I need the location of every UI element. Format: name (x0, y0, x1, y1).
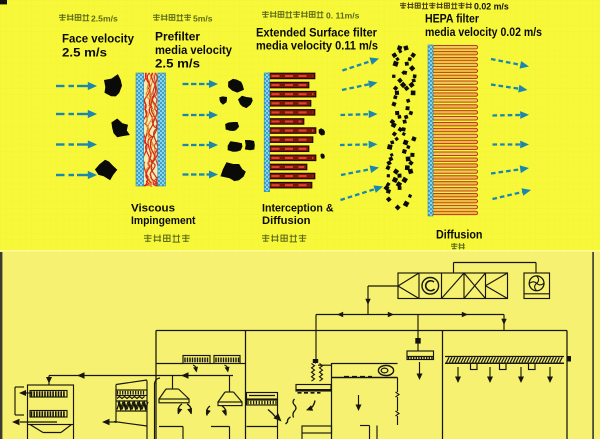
svg-text:Face velocity: Face velocity (62, 32, 134, 46)
svg-text:0.02 m/s: 0.02 m/s (474, 2, 509, 12)
svg-text:5m/s: 5m/s (193, 14, 213, 24)
svg-text:2.5 m/s: 2.5 m/s (155, 57, 200, 71)
svg-text:Prefilter: Prefilter (155, 30, 200, 44)
svg-text:HEPA filter: HEPA filter (425, 12, 479, 26)
svg-text:Interception &: Interception & (262, 203, 334, 215)
svg-text:Diffusion: Diffusion (262, 215, 311, 227)
svg-text:Extended Surface filter: Extended Surface filter (256, 26, 377, 40)
svg-text:Diffusion: Diffusion (436, 228, 483, 242)
svg-text:media velocity 0.02 m/s: media velocity 0.02 m/s (425, 25, 542, 39)
svg-text:Impingement: Impingement (131, 215, 196, 227)
svg-text:2.5m/s: 2.5m/s (91, 14, 118, 24)
svg-text:media velocity 0.11 m/s: media velocity 0.11 m/s (256, 39, 378, 53)
svg-text:Viscous: Viscous (131, 203, 175, 215)
svg-text:2.5 m/s: 2.5 m/s (62, 46, 107, 60)
svg-text:media velocity: media velocity (155, 43, 232, 57)
svg-text:0. 11m/s: 0. 11m/s (326, 11, 360, 21)
